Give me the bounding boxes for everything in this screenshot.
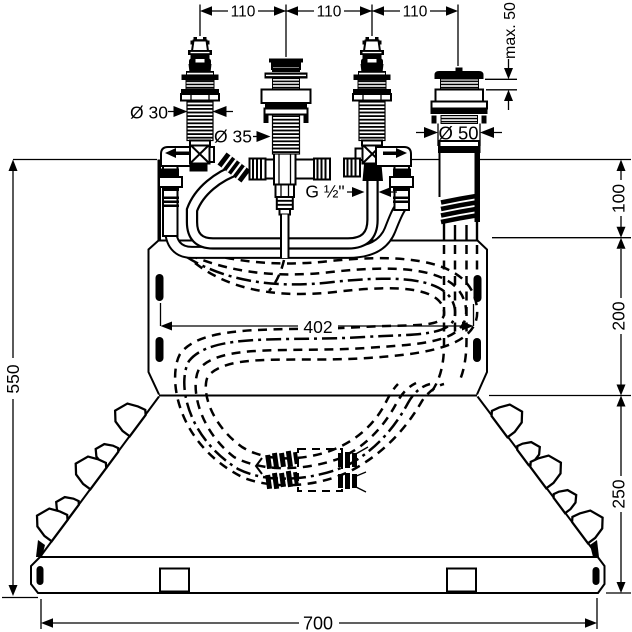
svg-text:402: 402 bbox=[303, 317, 332, 337]
svg-text:700: 700 bbox=[303, 614, 333, 632]
svg-text:Ø 50: Ø 50 bbox=[438, 123, 478, 144]
svg-text:max. 50: max. 50 bbox=[502, 2, 519, 59]
svg-text:110: 110 bbox=[403, 4, 428, 21]
svg-text:550: 550 bbox=[3, 364, 23, 393]
svg-text:200: 200 bbox=[609, 301, 629, 330]
svg-text:G ½": G ½" bbox=[305, 182, 344, 202]
svg-text:Ø 35: Ø 35 bbox=[214, 127, 252, 147]
svg-text:110: 110 bbox=[231, 4, 256, 21]
svg-text:100: 100 bbox=[609, 184, 629, 213]
svg-text:Ø 30: Ø 30 bbox=[130, 103, 168, 123]
svg-text:110: 110 bbox=[317, 4, 342, 21]
svg-text:250: 250 bbox=[609, 479, 629, 508]
